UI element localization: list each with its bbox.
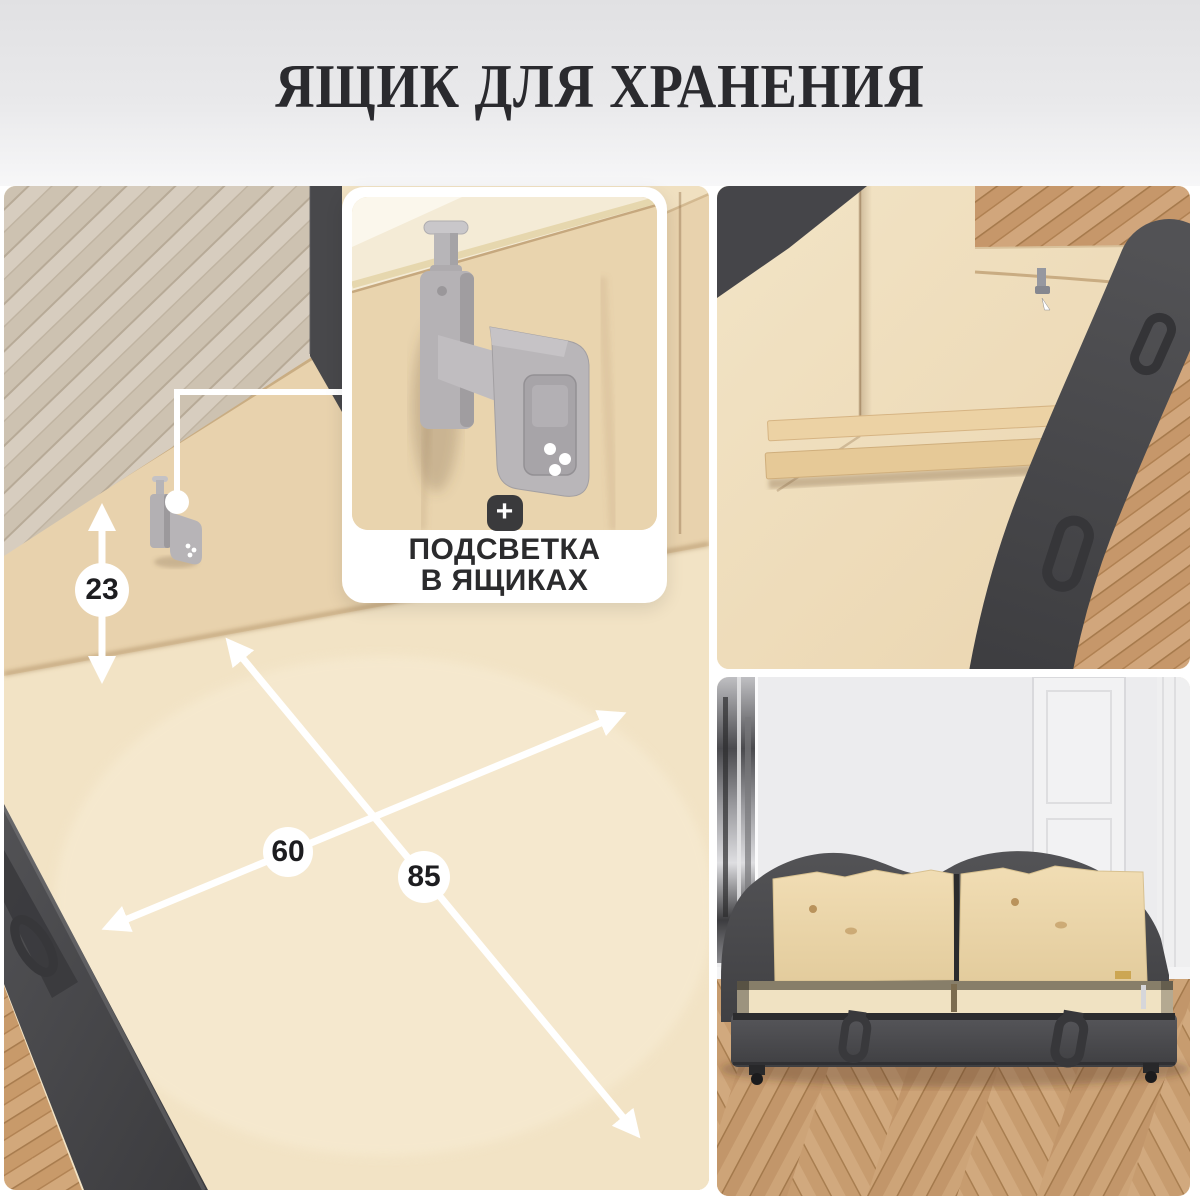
photo-open-storage-side-view: [717, 186, 1190, 669]
led-latch-drawing: [352, 197, 657, 530]
panel-shade: [860, 186, 872, 436]
page-title: ЯЩИК ДЛЯ ХРАНЕНИЯ: [275, 56, 924, 130]
height-value: 23: [85, 573, 118, 607]
photo-led-latch-closeup: [352, 197, 657, 530]
storage-box-infographic: ЯЩИК ДЛЯ ХРАНЕНИЯ: [0, 0, 1200, 1200]
length-value: 85: [407, 860, 440, 894]
storage-interior: [737, 981, 1173, 1015]
photo-sofa-open-storage: [717, 677, 1190, 1196]
sofa-open-storage-drawing: [717, 677, 1190, 1196]
callout-dot: [165, 490, 189, 514]
dimension-badge-width: 60: [263, 827, 313, 877]
dimension-badge-length: 85: [398, 851, 450, 903]
card-caption-line1: ПОДСВЕТКА: [342, 534, 667, 565]
dimension-badge-height: 23: [75, 563, 129, 617]
card-caption: ПОДСВЕТКА В ЯЩИКАХ: [342, 534, 667, 596]
plus-icon: +: [487, 495, 523, 531]
width-value: 60: [271, 835, 304, 869]
header: ЯЩИК ДЛЯ ХРАНЕНИЯ: [0, 0, 1200, 186]
open-storage-side-drawing: [717, 186, 1190, 669]
feature-callout-card: + ПОДСВЕТКА В ЯЩИКАХ: [342, 187, 667, 603]
wall-right-column: [1157, 677, 1190, 969]
card-caption-line2: В ЯЩИКАХ: [342, 565, 667, 596]
